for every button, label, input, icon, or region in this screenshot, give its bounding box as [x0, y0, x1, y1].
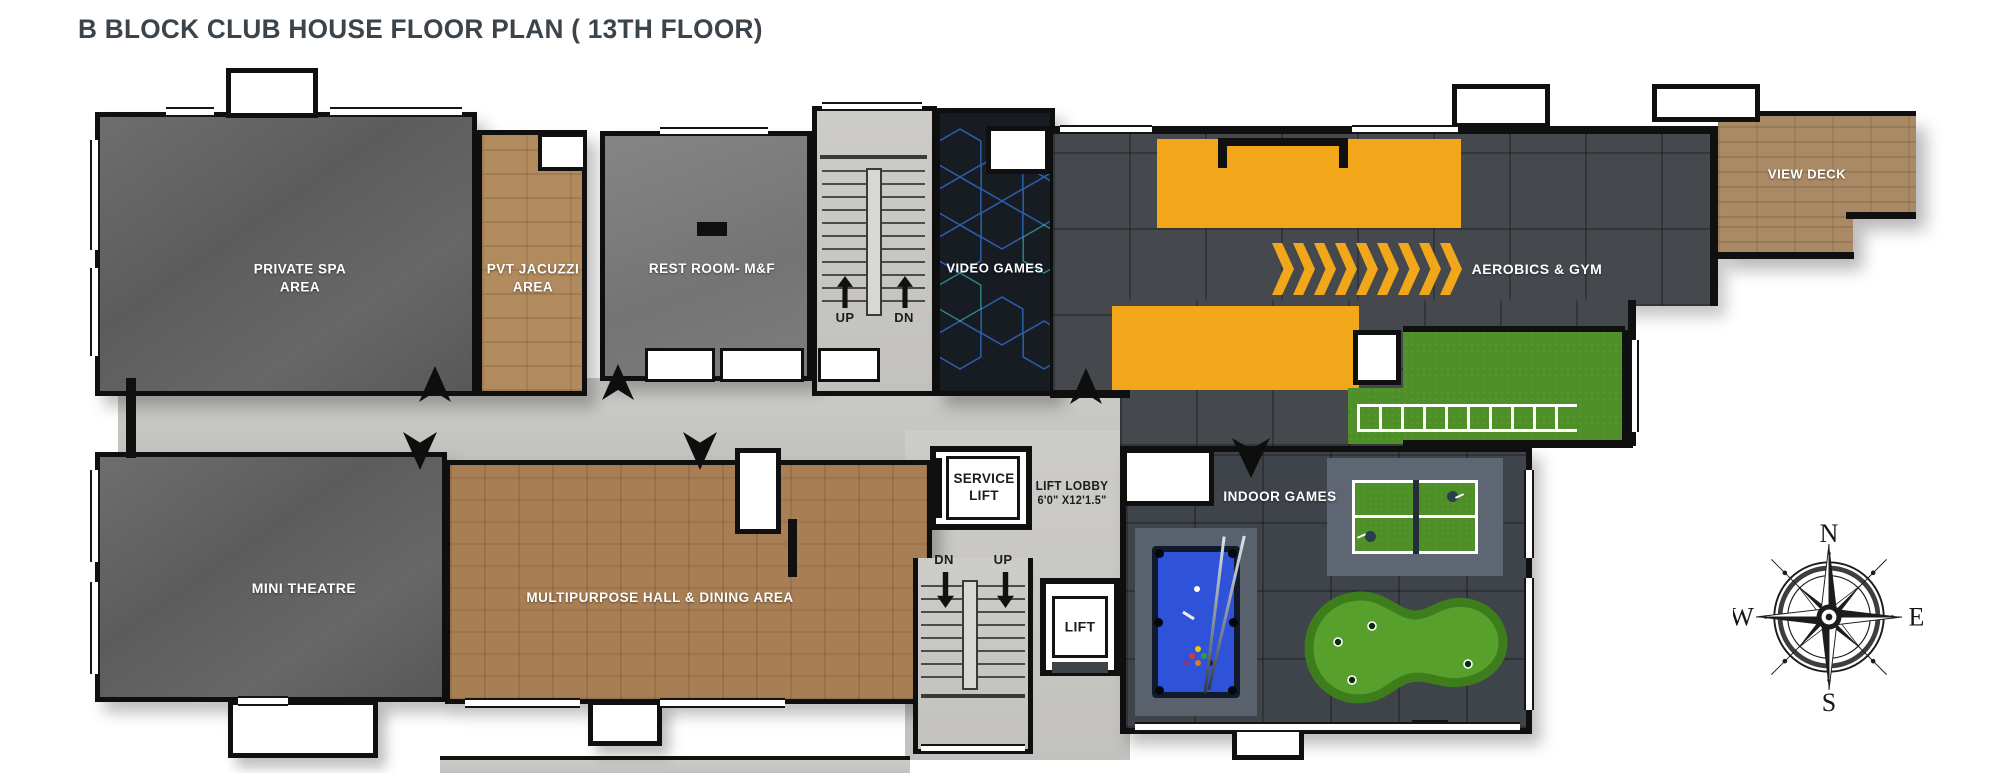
wall-segment	[1710, 126, 1718, 306]
table-tennis-net	[1413, 480, 1419, 554]
window	[660, 127, 768, 136]
stairs-up-label: UP	[994, 552, 1013, 568]
compass-east-label: E	[1908, 603, 1924, 632]
table-tennis-table	[1352, 480, 1478, 554]
window	[1630, 340, 1639, 432]
wall-segment	[788, 519, 797, 577]
window	[1524, 578, 1534, 710]
door-niche	[1122, 448, 1214, 506]
window	[90, 140, 100, 250]
paddle-icon	[1447, 491, 1458, 502]
floor-plan: B BLOCK CLUB HOUSE FLOOR PLAN ( 13TH FLO…	[0, 0, 2000, 773]
room-label-pvt-jacuzzi: PVT JACUZZI AREA	[487, 260, 580, 295]
mini-golf-green	[1300, 586, 1512, 722]
window	[90, 268, 100, 356]
pool-table	[1152, 546, 1240, 698]
window	[1352, 125, 1458, 134]
gym-mat	[1157, 139, 1461, 228]
lower-corridor-strip	[440, 756, 910, 773]
wall-segment	[1714, 252, 1854, 259]
window	[238, 696, 288, 706]
wall-segment	[936, 458, 942, 518]
balcony-niche	[1652, 84, 1760, 122]
wall-segment	[1622, 330, 1630, 448]
paddle-icon	[1365, 531, 1376, 542]
window	[166, 107, 214, 117]
stair-rail	[962, 580, 978, 690]
lift-label: LIFT	[1065, 618, 1096, 636]
window	[90, 582, 100, 674]
lift-sill	[1052, 662, 1108, 673]
room-label-video-games: VIDEO GAMES	[946, 261, 1043, 278]
window	[330, 107, 462, 117]
stairs-dn-label: DN	[894, 310, 913, 326]
door-niche	[1353, 330, 1401, 385]
room-label-indoor-games: INDOOR GAMES	[1223, 488, 1336, 506]
window	[465, 698, 580, 708]
window	[90, 470, 100, 562]
window-bay	[645, 348, 715, 382]
room-rest-room	[600, 131, 812, 381]
window	[822, 102, 922, 111]
door-niche	[538, 133, 587, 171]
stairs-dn-label: DN	[934, 552, 953, 568]
gym-mat	[1112, 306, 1359, 390]
window	[1524, 470, 1534, 558]
chalk-mark	[1182, 611, 1195, 620]
room-label-aerobics-gym: AEROBICS & GYM	[1472, 260, 1603, 278]
room-label-rest-room: REST ROOM- M&F	[649, 260, 775, 278]
table-tennis-platform	[1327, 458, 1503, 576]
wall-segment	[1403, 326, 1625, 332]
room-multipurpose-hall	[445, 460, 932, 704]
wall-segment	[1218, 138, 1348, 146]
stair-rail	[866, 168, 882, 316]
room-mini-theatre	[95, 452, 447, 702]
window	[1060, 125, 1152, 134]
window	[921, 744, 1025, 753]
service-lift-label: SERVICE LIFT	[953, 471, 1014, 505]
balcony-niche	[228, 700, 378, 758]
room-label-view-deck: VIEW DECK	[1768, 167, 1846, 184]
balcony-niche	[1452, 84, 1550, 128]
lift-lobby-size-label: 6'0" X12'1.5"	[1037, 494, 1106, 508]
room-label-mini-theatre: MINI THEATRE	[252, 579, 357, 597]
balcony-niche	[588, 700, 662, 746]
stairs-up-label: UP	[836, 310, 855, 326]
compass-north-label: N	[1820, 521, 1839, 548]
agility-ladder	[1357, 404, 1577, 432]
room-private-spa	[95, 112, 477, 396]
wall-segment	[1218, 138, 1227, 168]
stair-landing-edge	[820, 155, 927, 159]
window	[660, 698, 785, 708]
stair-landing-edge	[921, 694, 1025, 698]
window-bay	[720, 348, 804, 382]
window-bay	[818, 348, 880, 382]
wall-segment	[1846, 212, 1916, 219]
window	[1135, 722, 1520, 732]
wall-segment	[126, 378, 136, 458]
lift-lobby-label: LIFT LOBBY	[1036, 479, 1109, 495]
page-title: B BLOCK CLUB HOUSE FLOOR PLAN ( 13TH FLO…	[78, 14, 763, 45]
wall-segment	[1339, 138, 1348, 168]
compass-south-label: S	[1822, 688, 1836, 713]
cue-ball	[1194, 586, 1200, 592]
room-label-multipurpose-hall: MULTIPURPOSE HALL & DINING AREA	[526, 589, 793, 607]
balcony-niche	[226, 68, 318, 118]
door-niche	[986, 126, 1050, 174]
compass-west-label: W	[1733, 603, 1754, 632]
room-label-private-spa: PRIVATE SPA AREA	[254, 260, 347, 295]
pool-platform	[1135, 528, 1257, 716]
wall-segment	[697, 222, 727, 236]
compass-rose: N E S W	[1733, 521, 1925, 713]
wall-segment	[1403, 440, 1633, 448]
door-niche	[735, 448, 781, 534]
